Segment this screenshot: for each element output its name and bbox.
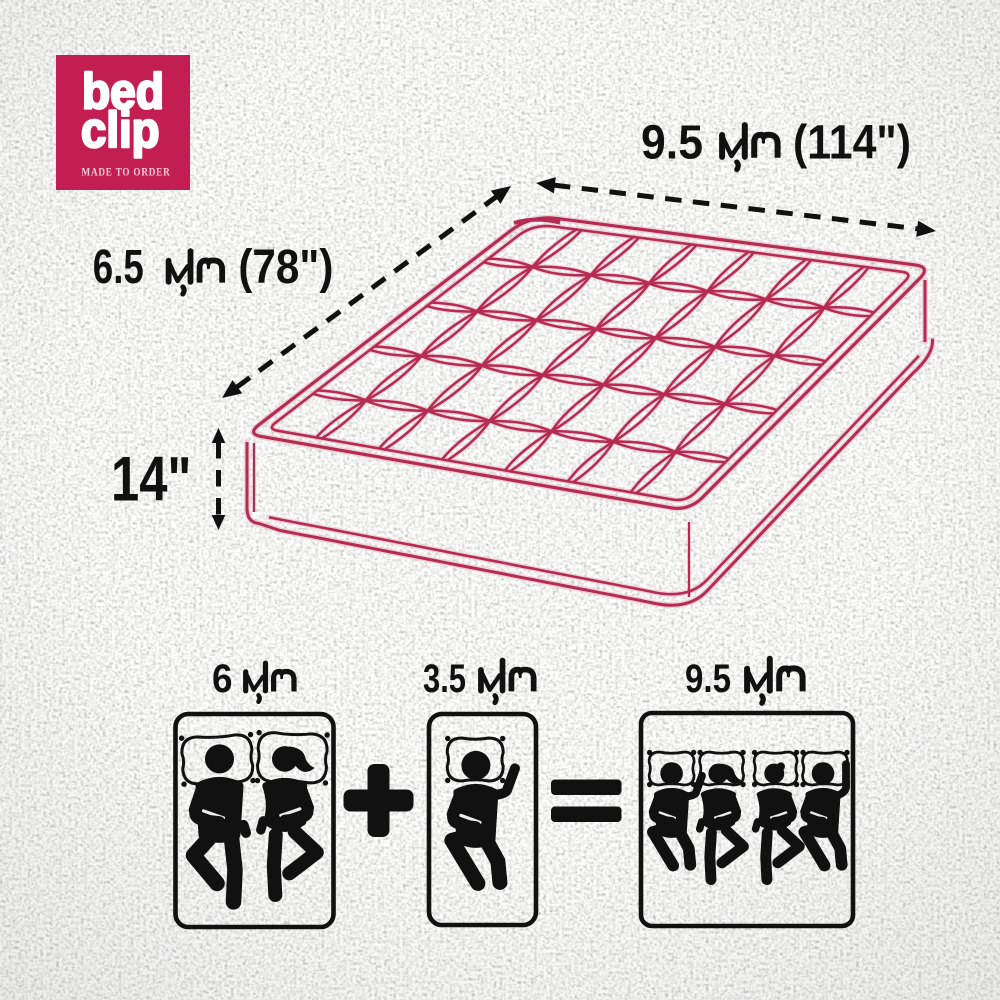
svg-text:6.5: 6.5	[93, 241, 144, 294]
svg-text:MADE TO ORDER: MADE TO ORDER	[82, 167, 171, 179]
svg-text:14": 14"	[111, 445, 192, 515]
svg-text:clip: clip	[81, 102, 160, 158]
svg-text:9.5: 9.5	[641, 116, 703, 169]
svg-text:(78"): (78")	[238, 241, 333, 294]
svg-text:3.5: 3.5	[423, 657, 466, 701]
svg-text:(114"): (114")	[793, 116, 911, 169]
svg-text:6: 6	[212, 657, 233, 701]
svg-text:9.5: 9.5	[685, 657, 731, 701]
